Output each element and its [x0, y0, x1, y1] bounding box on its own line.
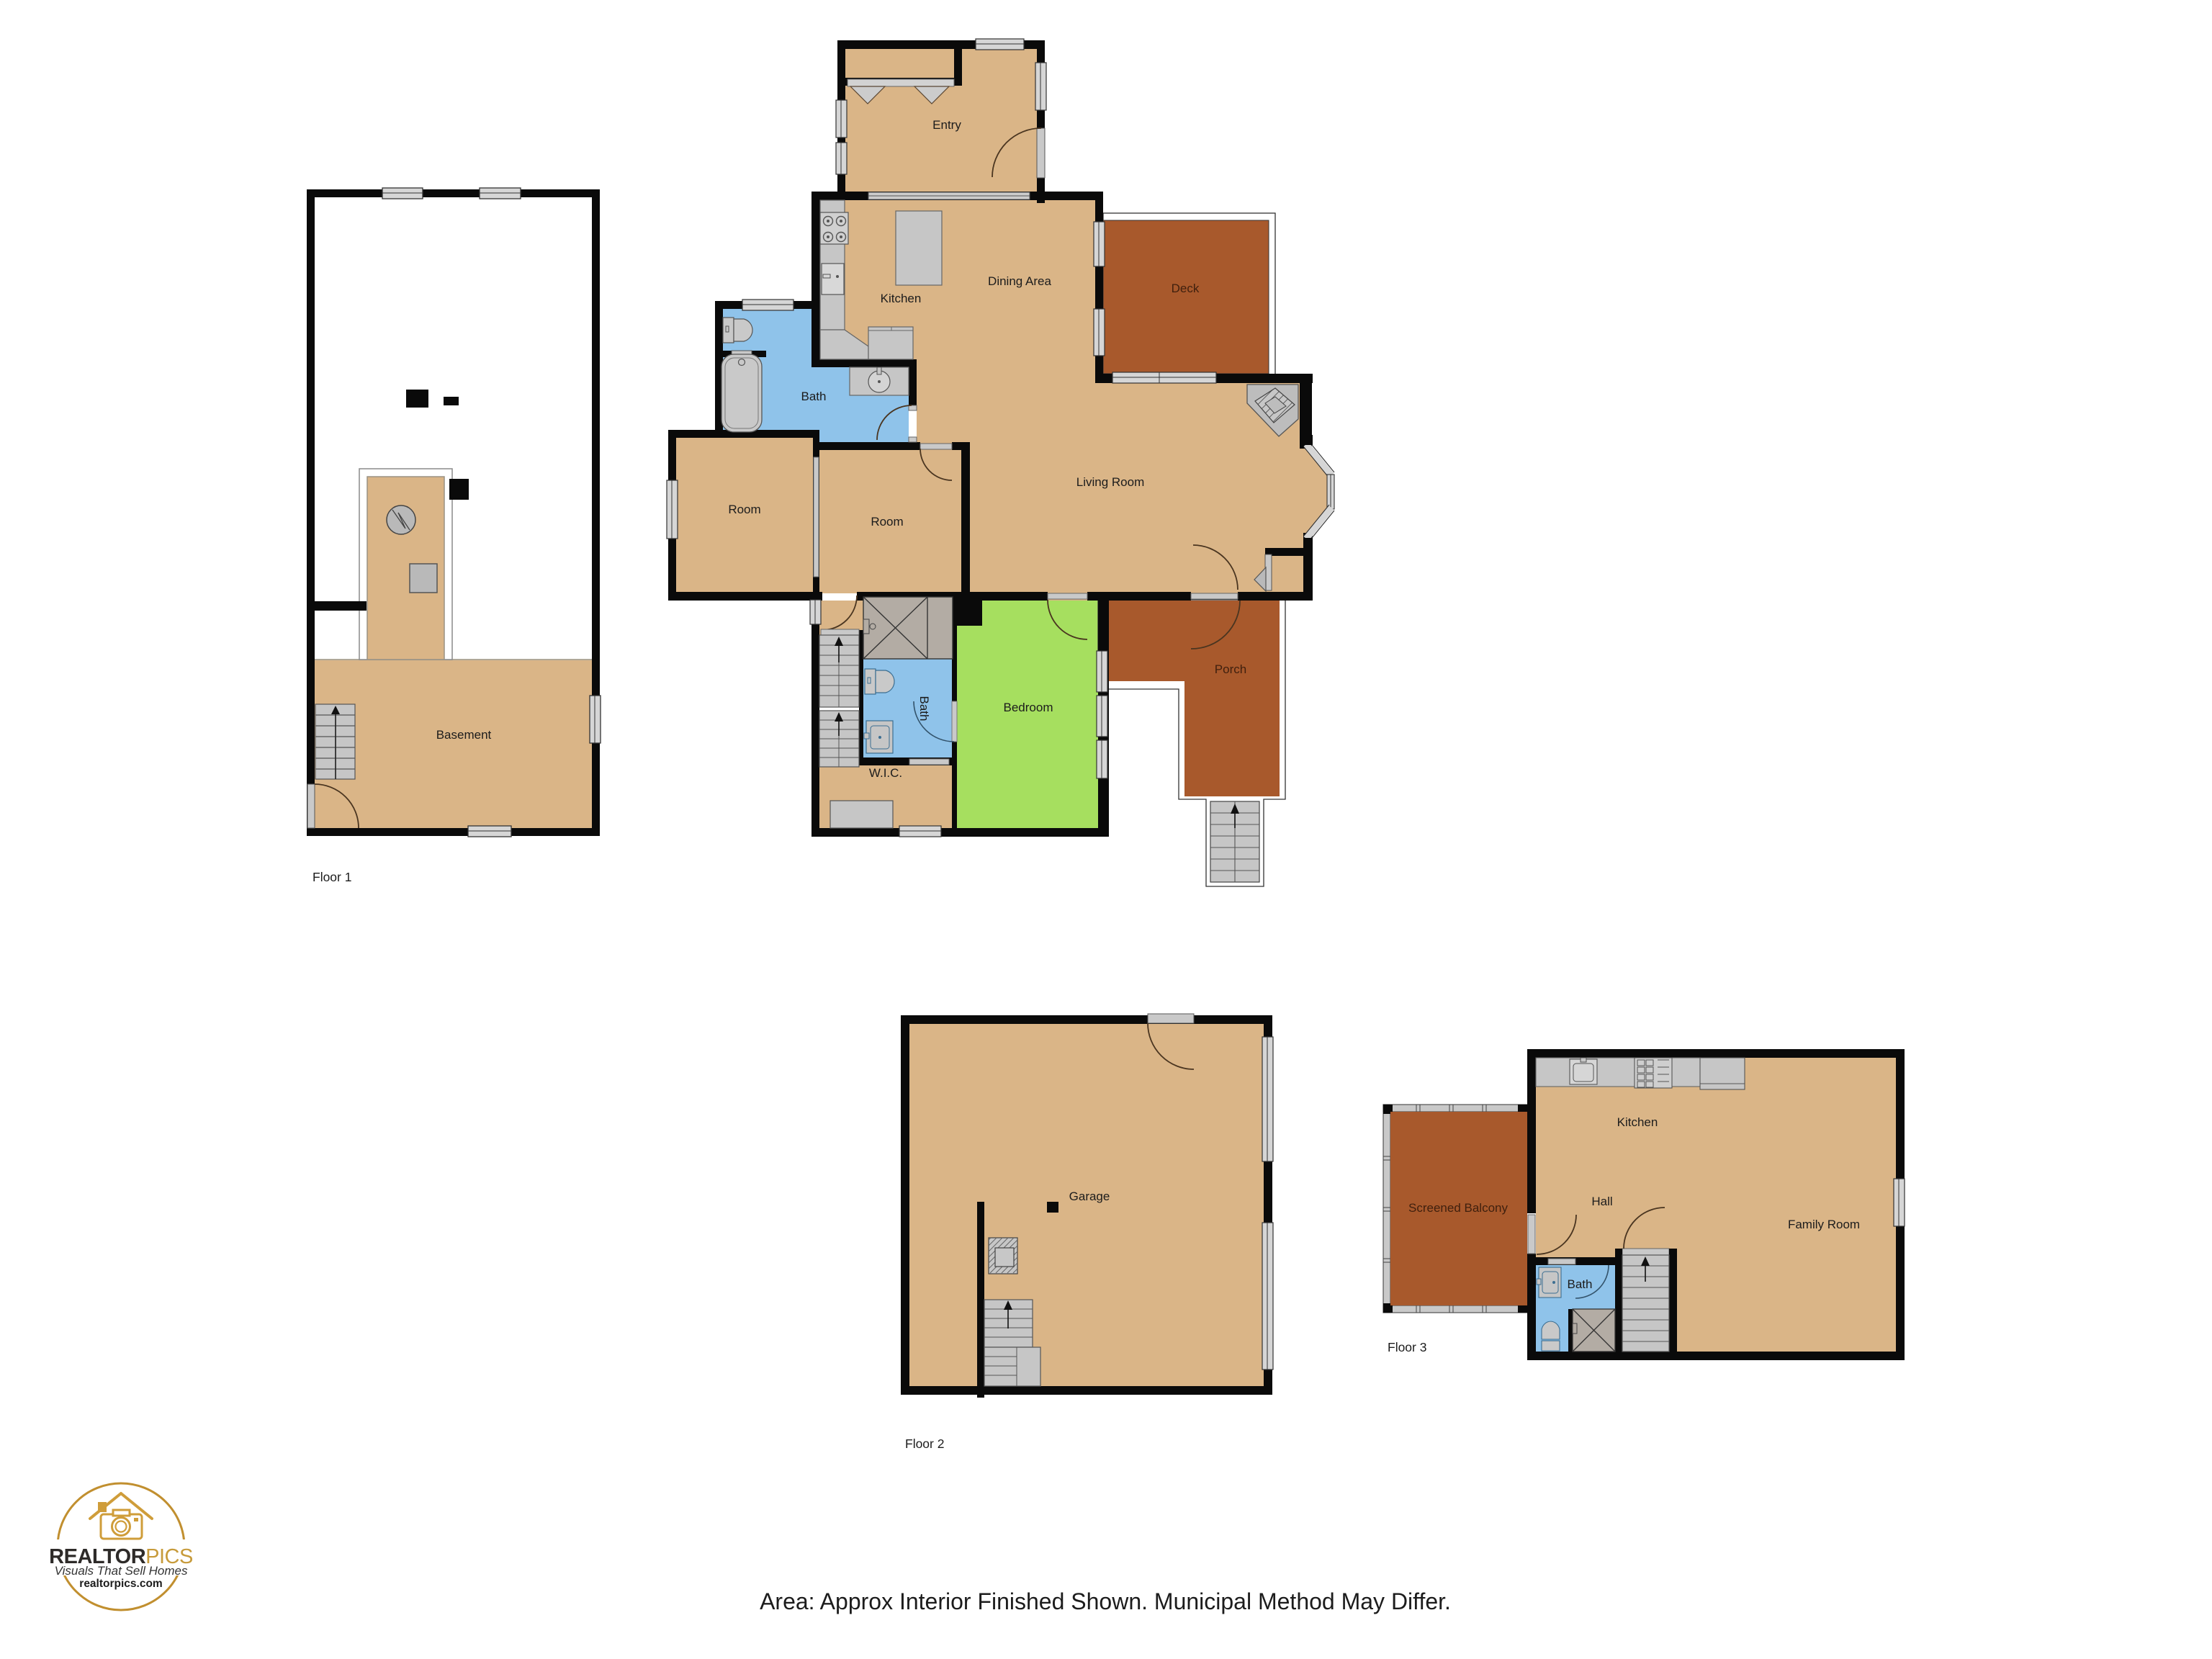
svg-text:Basement: Basement: [436, 728, 492, 742]
svg-text:Porch: Porch: [1215, 662, 1246, 676]
svg-text:Family Room: Family Room: [1788, 1218, 1860, 1231]
svg-text:Entry: Entry: [932, 118, 961, 132]
svg-text:Bedroom: Bedroom: [1004, 701, 1053, 714]
svg-text:Bath: Bath: [1568, 1277, 1593, 1291]
svg-text:Room: Room: [871, 515, 903, 529]
svg-text:Garage: Garage: [1069, 1190, 1110, 1203]
svg-text:realtorpics.com: realtorpics.com: [79, 1578, 162, 1590]
svg-text:Living Room: Living Room: [1076, 475, 1145, 489]
svg-text:Floor 2: Floor 2: [905, 1437, 944, 1451]
svg-text:Deck: Deck: [1172, 282, 1200, 295]
svg-text:Kitchen: Kitchen: [1617, 1115, 1658, 1129]
svg-text:Kitchen: Kitchen: [881, 292, 922, 305]
svg-text:Area: Approx Interior Finished: Area: Approx Interior Finished Shown. Mu…: [760, 1588, 1451, 1614]
svg-text:Bath: Bath: [801, 390, 827, 403]
svg-text:Room: Room: [728, 503, 760, 516]
svg-text:Dining Area: Dining Area: [988, 274, 1051, 288]
svg-text:Visuals That Sell Homes: Visuals That Sell Homes: [55, 1564, 188, 1578]
svg-text:W.I.C.: W.I.C.: [869, 766, 902, 780]
svg-text:Floor 3: Floor 3: [1388, 1340, 1426, 1354]
svg-text:Hall: Hall: [1591, 1195, 1612, 1208]
svg-text:Floor 1: Floor 1: [313, 870, 351, 884]
svg-text:Bath: Bath: [917, 696, 931, 721]
svg-text:Screened Balcony: Screened Balcony: [1408, 1201, 1508, 1215]
